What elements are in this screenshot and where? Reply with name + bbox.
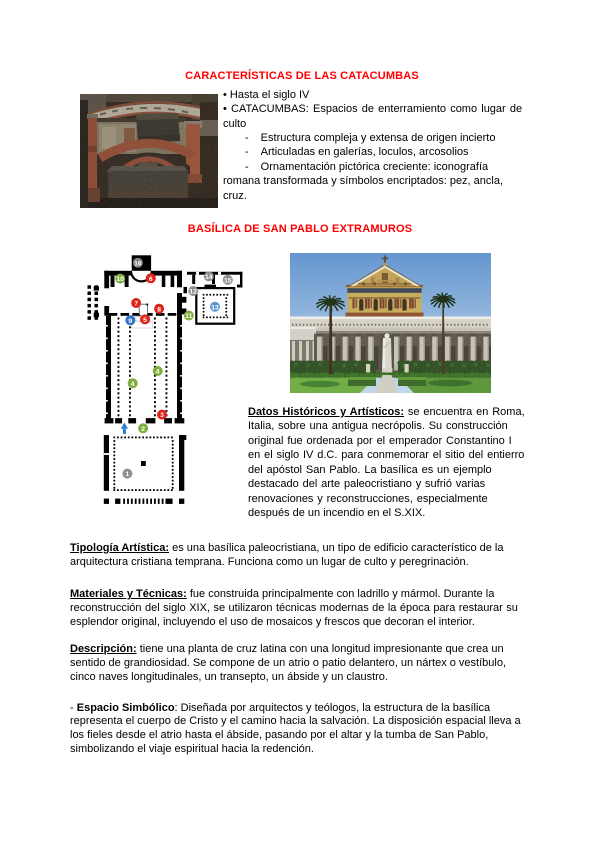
svg-text:11: 11 (185, 313, 192, 320)
svg-text:2: 2 (141, 426, 145, 433)
svg-text:10: 10 (116, 276, 124, 283)
svg-text:14: 14 (205, 274, 213, 281)
svg-text:15: 15 (224, 278, 232, 285)
svg-text:12: 12 (189, 289, 197, 296)
svg-text:13: 13 (211, 304, 219, 311)
svg-text:9: 9 (128, 318, 132, 325)
svg-text:4: 4 (156, 369, 160, 376)
svg-text:4: 4 (131, 381, 135, 388)
svg-text:16: 16 (134, 260, 142, 267)
svg-text:8: 8 (157, 306, 161, 313)
svg-text:1: 1 (126, 471, 130, 478)
svg-text:7: 7 (134, 301, 138, 308)
svg-text:6: 6 (149, 276, 153, 283)
svg-text:5: 5 (143, 317, 147, 324)
svg-text:3: 3 (160, 412, 164, 419)
